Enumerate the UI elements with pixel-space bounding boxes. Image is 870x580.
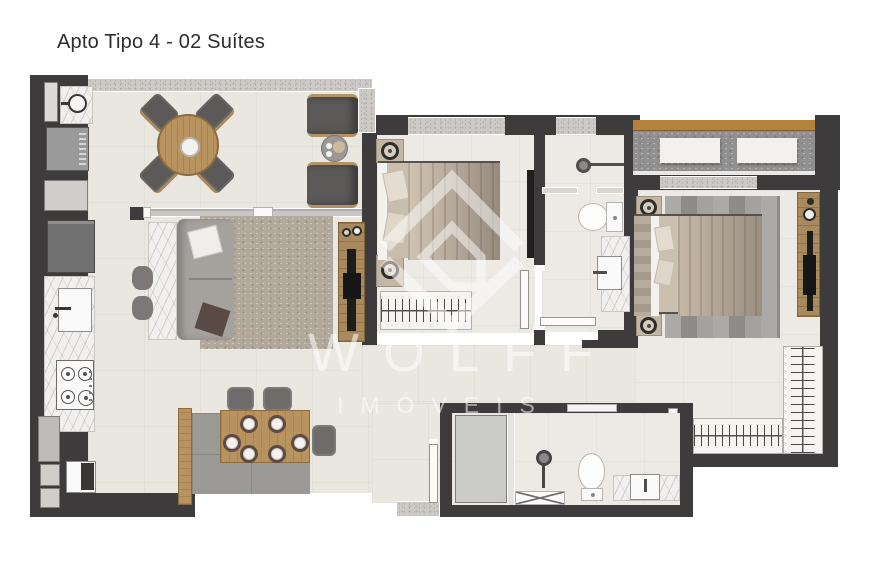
dining-chair bbox=[227, 387, 254, 411]
watermark-brand: WOLFF bbox=[308, 322, 617, 384]
dining-chair bbox=[312, 425, 336, 456]
armchair bbox=[307, 94, 358, 137]
kitchen-sink bbox=[58, 288, 92, 332]
suite2-window bbox=[660, 176, 757, 189]
cooktop bbox=[56, 360, 94, 410]
suite1-lamp bbox=[381, 142, 399, 160]
toilet-tank bbox=[581, 488, 603, 501]
living-corner-window bbox=[358, 88, 376, 133]
shower-bench bbox=[515, 491, 565, 505]
toilet bbox=[578, 203, 608, 231]
shower-partition bbox=[596, 187, 624, 194]
balcony-bench bbox=[660, 138, 720, 163]
bath2-sink bbox=[630, 474, 660, 500]
door-jamb bbox=[429, 439, 438, 444]
bath1-window bbox=[556, 117, 596, 135]
balcony-bench bbox=[737, 138, 797, 163]
laundry-tank bbox=[60, 86, 93, 124]
side-table bbox=[321, 135, 348, 162]
service-cabinet bbox=[44, 82, 58, 122]
shower-partition bbox=[542, 187, 578, 194]
bath2-door bbox=[429, 444, 438, 503]
balcony-sill bbox=[633, 171, 815, 175]
bath2-upper-door bbox=[567, 404, 617, 412]
toilet-tank bbox=[606, 202, 623, 232]
shower-arm bbox=[589, 163, 624, 166]
dining-table bbox=[220, 410, 310, 463]
round-dining-table bbox=[157, 114, 219, 176]
shaft-box bbox=[455, 415, 507, 503]
oven bbox=[66, 461, 96, 493]
door-jamb bbox=[143, 207, 151, 218]
washing-machine bbox=[46, 127, 89, 171]
living-top-window bbox=[88, 78, 372, 92]
tv-panel-suite2 bbox=[797, 192, 820, 317]
balcony-deck bbox=[633, 120, 815, 131]
toilet bbox=[578, 453, 605, 490]
suite2-closet-horizontal bbox=[693, 418, 783, 454]
service-box bbox=[40, 488, 60, 508]
suite2-closet-vertical bbox=[783, 346, 823, 454]
bath1-sink bbox=[597, 256, 622, 290]
floor-plan-page: Apto Tipo 4 - 02 Suítes bbox=[0, 0, 870, 580]
dining-chair bbox=[263, 387, 292, 411]
wolff-logo-watermark bbox=[357, 165, 547, 333]
shower-arm bbox=[542, 464, 545, 488]
dining-bench-back bbox=[178, 408, 192, 505]
service-box bbox=[40, 464, 60, 486]
bath2-partition bbox=[507, 413, 515, 505]
watermark-sub: IMÓVEIS bbox=[337, 392, 552, 419]
refrigerator bbox=[47, 220, 95, 273]
suite1-window bbox=[408, 117, 505, 135]
page-title: Apto Tipo 4 - 02 Suítes bbox=[57, 31, 265, 54]
service-box bbox=[38, 416, 60, 462]
bed-pillow bbox=[654, 259, 676, 287]
bed-pillow bbox=[654, 225, 675, 253]
service-reserve-space bbox=[44, 180, 88, 211]
bath2-window bbox=[397, 501, 439, 517]
armchair bbox=[307, 162, 358, 208]
wall-slider-end bbox=[130, 207, 144, 220]
stool bbox=[132, 296, 153, 320]
stool bbox=[132, 266, 153, 290]
suite2-lamp bbox=[640, 317, 657, 334]
suite2-bed bbox=[634, 214, 762, 314]
